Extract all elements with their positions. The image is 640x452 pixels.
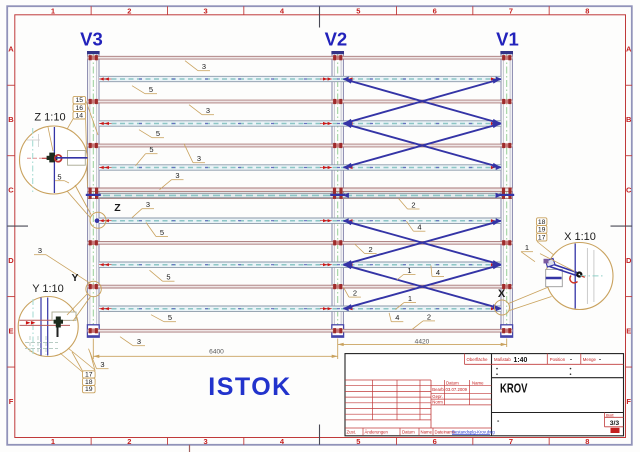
- svg-text:5: 5: [166, 273, 170, 282]
- svg-text:1: 1: [408, 294, 412, 303]
- svg-text:Blatt: Blatt: [606, 413, 615, 417]
- svg-text:3: 3: [146, 200, 150, 209]
- svg-text:7: 7: [509, 437, 513, 446]
- svg-text:4: 4: [436, 268, 440, 277]
- svg-text:X 1:10: X 1:10: [564, 231, 596, 243]
- svg-text:19: 19: [85, 386, 93, 393]
- svg-text:3: 3: [206, 106, 210, 115]
- svg-text:5: 5: [356, 7, 360, 16]
- svg-text:V1: V1: [496, 29, 519, 50]
- svg-text:Änderungen: Änderungen: [365, 430, 389, 435]
- svg-text:V3: V3: [80, 29, 103, 50]
- svg-text:2: 2: [127, 437, 131, 446]
- svg-text:C: C: [626, 185, 632, 194]
- svg-text:Z 1:10: Z 1:10: [34, 112, 65, 124]
- svg-text:5: 5: [356, 437, 360, 446]
- svg-text:Position: Position: [550, 357, 566, 362]
- svg-text:B: B: [8, 115, 14, 124]
- svg-text:-: -: [570, 358, 572, 364]
- svg-text:1: 1: [51, 7, 55, 16]
- svg-text:5: 5: [168, 313, 172, 322]
- svg-text:E: E: [626, 326, 631, 335]
- svg-text:18: 18: [538, 219, 546, 226]
- svg-text:Name: Name: [472, 380, 484, 385]
- svg-text:3: 3: [202, 62, 206, 71]
- svg-text:Y: Y: [71, 272, 78, 284]
- svg-text:2: 2: [353, 289, 357, 298]
- svg-text:17: 17: [85, 371, 93, 378]
- svg-text:1: 1: [51, 437, 55, 446]
- svg-text:KROV: KROV: [500, 381, 528, 395]
- svg-text:5: 5: [156, 129, 160, 138]
- svg-text:2: 2: [127, 7, 131, 16]
- svg-text:A: A: [626, 45, 632, 54]
- svg-text:4420: 4420: [415, 338, 430, 345]
- svg-text:6: 6: [433, 7, 437, 16]
- svg-text:3: 3: [175, 171, 179, 180]
- svg-text:1: 1: [407, 266, 411, 275]
- svg-text:ISTOK: ISTOK: [208, 373, 291, 401]
- svg-text:X: X: [498, 288, 506, 300]
- svg-text:17: 17: [538, 234, 546, 241]
- svg-text:3: 3: [204, 7, 208, 16]
- svg-text:D: D: [8, 256, 14, 265]
- svg-text:Menge: Menge: [583, 357, 597, 362]
- svg-text:Bearb.: Bearb.: [432, 387, 445, 392]
- svg-text:Datum: Datum: [402, 430, 415, 435]
- svg-text:2: 2: [427, 312, 431, 321]
- svg-text:D: D: [626, 256, 632, 265]
- svg-text:-: -: [599, 358, 601, 364]
- svg-text:C: C: [8, 185, 14, 194]
- svg-text:6400: 6400: [209, 348, 224, 355]
- svg-text:18: 18: [85, 379, 93, 386]
- svg-text:4: 4: [417, 223, 421, 232]
- svg-text:F: F: [9, 397, 14, 406]
- svg-text:3/3: 3/3: [610, 420, 620, 427]
- svg-text:8: 8: [585, 437, 589, 446]
- svg-text:5: 5: [149, 145, 153, 154]
- svg-text:3: 3: [100, 360, 104, 369]
- svg-text:Maßstab: Maßstab: [494, 357, 511, 362]
- svg-text:F: F: [626, 397, 631, 406]
- svg-text:4: 4: [395, 313, 399, 322]
- svg-text:14: 14: [76, 112, 84, 119]
- svg-text:1: 1: [525, 243, 529, 252]
- svg-text:E: E: [8, 326, 13, 335]
- svg-text:2: 2: [369, 245, 373, 254]
- svg-text:5: 5: [160, 228, 164, 237]
- svg-text:Norm: Norm: [432, 400, 443, 405]
- svg-text:1:40: 1:40: [514, 355, 528, 364]
- svg-text:16: 16: [76, 105, 84, 112]
- svg-text:5: 5: [149, 85, 153, 94]
- svg-text:B: B: [626, 115, 632, 124]
- svg-text:15: 15: [76, 97, 84, 104]
- svg-text:3: 3: [137, 337, 141, 346]
- svg-text:V2: V2: [325, 29, 348, 50]
- svg-text:19: 19: [538, 227, 546, 234]
- svg-text:8: 8: [585, 7, 589, 16]
- svg-text:6: 6: [433, 437, 437, 446]
- svg-text:A: A: [8, 45, 14, 54]
- svg-text:Gepr.: Gepr.: [432, 394, 443, 399]
- svg-text:03.07.2009: 03.07.2009: [446, 387, 468, 392]
- svg-text:Name: Name: [421, 430, 433, 435]
- svg-text:Oberfläche: Oberfläche: [467, 357, 489, 362]
- svg-text:7: 7: [509, 7, 513, 16]
- svg-text:Bestandsplg-Krov.dwg: Bestandsplg-Krov.dwg: [452, 430, 495, 435]
- svg-text:Zust.: Zust.: [347, 430, 357, 435]
- svg-text:Z: Z: [114, 202, 121, 214]
- svg-text:3: 3: [197, 154, 201, 163]
- svg-text:3: 3: [204, 437, 208, 446]
- svg-text:3: 3: [38, 246, 42, 255]
- svg-text:5: 5: [57, 173, 61, 182]
- svg-text:Datum: Datum: [446, 380, 459, 385]
- svg-text:Y 1:10: Y 1:10: [32, 283, 64, 295]
- svg-text:2: 2: [411, 200, 415, 209]
